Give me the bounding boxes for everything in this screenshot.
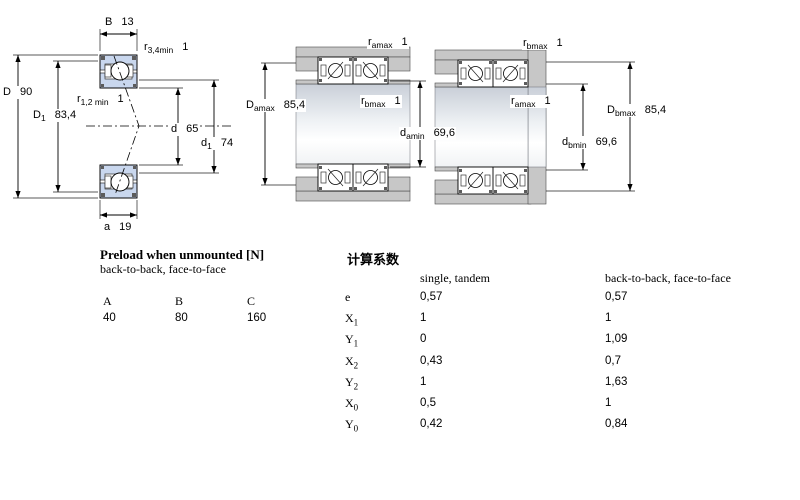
calc-col1-header: single, tandem xyxy=(420,267,605,289)
dim-label-d: d65 xyxy=(170,123,199,136)
preload-value: 40 xyxy=(100,310,172,327)
dim-label-a: a19 xyxy=(103,221,132,234)
dim-label-r34min: r3,4min1 xyxy=(143,41,189,54)
preload-title: Preload when unmounted [N] xyxy=(100,247,330,262)
dim-label-D1: D183,4 xyxy=(32,109,77,122)
calc-row-single: 0,42 xyxy=(420,416,605,437)
calc-row-btb: 1 xyxy=(605,395,731,416)
calc-row-symbol: Y0 xyxy=(345,416,420,437)
bearing-datasheet-page: B13 r3,4min1 D90 D183,4 r1,2 min1 d65 d1… xyxy=(0,0,800,500)
dim-label-ramax-a: ramax1 xyxy=(367,36,409,49)
mounting-diagram-a-drawing xyxy=(261,47,426,201)
calc-row-btb: 0,57 xyxy=(605,289,731,310)
calc-row-single: 0,5 xyxy=(420,395,605,416)
calc-row-symbol: X1 xyxy=(345,310,420,331)
dim-label-d1: d174 xyxy=(200,137,234,150)
calc-row-symbol: e xyxy=(345,289,420,310)
calc-row-btb: 0,84 xyxy=(605,416,731,437)
preload-col-header: A xyxy=(100,293,172,310)
calc-row-btb: 1,63 xyxy=(605,374,731,395)
mounting-diagram-b-drawing xyxy=(435,50,635,204)
calc-row-btb: 0,7 xyxy=(605,353,731,374)
calc-row-symbol: Y1 xyxy=(345,331,420,352)
calc-row-symbol: Y2 xyxy=(345,374,420,395)
dim-label-damin: damin69,6 xyxy=(399,127,456,140)
dim-label-Damax: Damax85,4 xyxy=(245,99,306,112)
dim-label-B: B13 xyxy=(104,16,135,29)
preload-table: Preload when unmounted [N] back-to-back,… xyxy=(100,247,330,327)
dim-label-Dbmax: Dbmax85,4 xyxy=(606,104,667,117)
calc-row-single: 0,43 xyxy=(420,353,605,374)
calc-row-single: 0 xyxy=(420,331,605,352)
preload-value: 80 xyxy=(172,310,244,327)
dim-label-r12min: r1,2 min1 xyxy=(76,93,125,106)
dim-label-rbmax-b: rbmax1 xyxy=(522,37,564,50)
preload-subtitle: back-to-back, face-to-face xyxy=(100,262,330,277)
dim-label-rbmax-a: rbmax1 xyxy=(360,95,402,108)
calc-factors-table: single, tandem back-to-back, face-to-fac… xyxy=(345,267,731,437)
preload-col-header: B xyxy=(172,293,244,310)
calc-row-single: 1 xyxy=(420,310,605,331)
dim-label-ramax-b: ramax1 xyxy=(510,95,552,108)
calc-row-single: 0,57 xyxy=(420,289,605,310)
preload-col-header: C xyxy=(244,293,316,310)
calc-row-btb: 1,09 xyxy=(605,331,731,352)
calc-factors-title: 计算系数 xyxy=(347,249,399,268)
preload-value: 160 xyxy=(244,310,316,327)
calc-row-symbol: X0 xyxy=(345,395,420,416)
calc-row-single: 1 xyxy=(420,374,605,395)
calc-col2-header: back-to-back, face-to-face xyxy=(605,267,731,289)
calc-row-symbol: X2 xyxy=(345,353,420,374)
calc-row-btb: 1 xyxy=(605,310,731,331)
dim-label-dbmin: dbmin69,6 xyxy=(561,136,618,149)
calc-corner-cell xyxy=(345,267,420,289)
dim-label-D: D90 xyxy=(2,86,33,99)
